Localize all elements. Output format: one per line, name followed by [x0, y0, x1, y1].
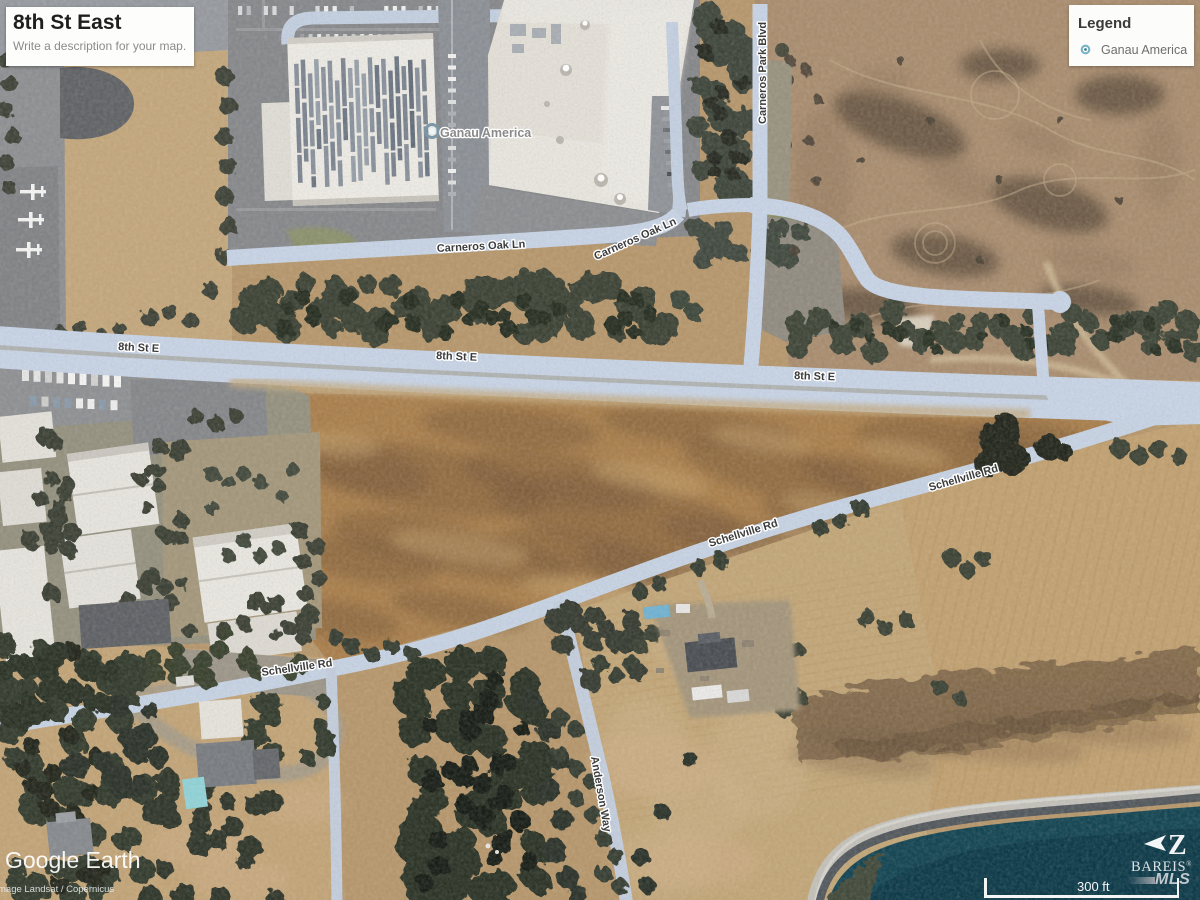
svg-text:Z: Z [1168, 830, 1187, 860]
svg-text:Carneros Park Blvd: Carneros Park Blvd [757, 22, 769, 124]
svg-text:8th St E: 8th St E [118, 341, 160, 355]
svg-text:Ganau America: Ganau America [440, 126, 532, 140]
svg-text:8th St E: 8th St E [436, 350, 477, 364]
svg-text:8th St E: 8th St E [794, 370, 835, 383]
